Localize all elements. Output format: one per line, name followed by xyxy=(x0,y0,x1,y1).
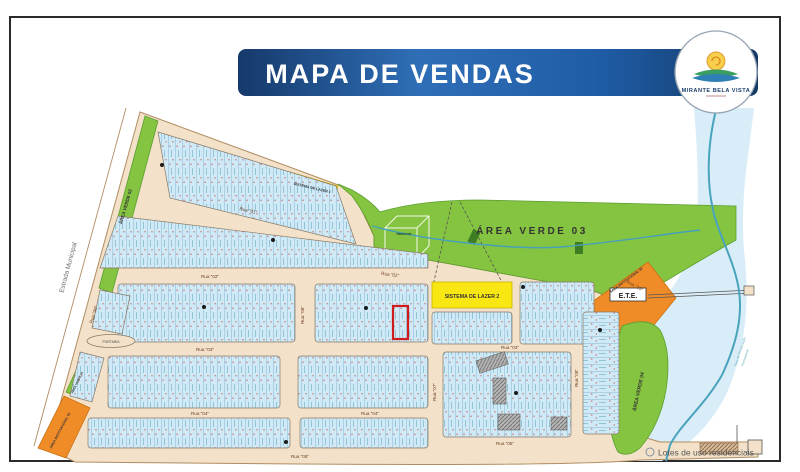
street-label: Rua "08" xyxy=(574,369,579,387)
block-row3-b xyxy=(315,284,428,342)
street-label: Rua "02" xyxy=(201,274,219,279)
block-row4-a xyxy=(108,356,280,408)
outfall-box xyxy=(744,286,754,295)
street-label: Rua "07" xyxy=(432,383,437,401)
street-label: Rua "03" xyxy=(501,345,519,350)
sistema-de-lazer-2-label: SISTEMA DE LAZER 2 xyxy=(445,294,500,300)
street-label: Rua "05" xyxy=(496,441,514,446)
sun-icon xyxy=(707,52,725,70)
block-under-lazer2 xyxy=(432,312,512,344)
logo-wordmark: MIRANTE BELA VISTA xyxy=(682,88,751,94)
sales-map-canvas: Estrada Municipal ÁREA VERDE 02 ÁREA VER… xyxy=(0,0,800,472)
street-label: Rua "04" xyxy=(191,411,209,416)
green-hatch-mark xyxy=(575,242,583,254)
street-label: Rua "03" xyxy=(196,347,214,352)
block-row5-b xyxy=(300,418,428,448)
street-label: Rua "06" xyxy=(300,306,305,324)
company-logo: MIRANTE BELA VISTA xyxy=(675,31,757,113)
page-title: MAPA DE VENDAS xyxy=(265,59,535,89)
estrada-municipal-label: Estrada Municipal xyxy=(58,241,78,293)
street-label: Rua "04" xyxy=(361,411,379,416)
street-label: Rua "05" xyxy=(291,454,309,459)
block-row4-b xyxy=(298,356,428,408)
block-row5-a xyxy=(88,418,290,448)
legend-residential-label: Lotes de uso residenciais xyxy=(658,448,754,458)
nascente-label: Nascente xyxy=(396,232,411,236)
block-row3-a xyxy=(118,284,295,342)
area-verde-03-label: ÁREA VERDE 03 xyxy=(476,224,588,237)
portaria-label: PORTARIA xyxy=(102,340,120,344)
ete-label: E.T.E. xyxy=(619,293,638,300)
